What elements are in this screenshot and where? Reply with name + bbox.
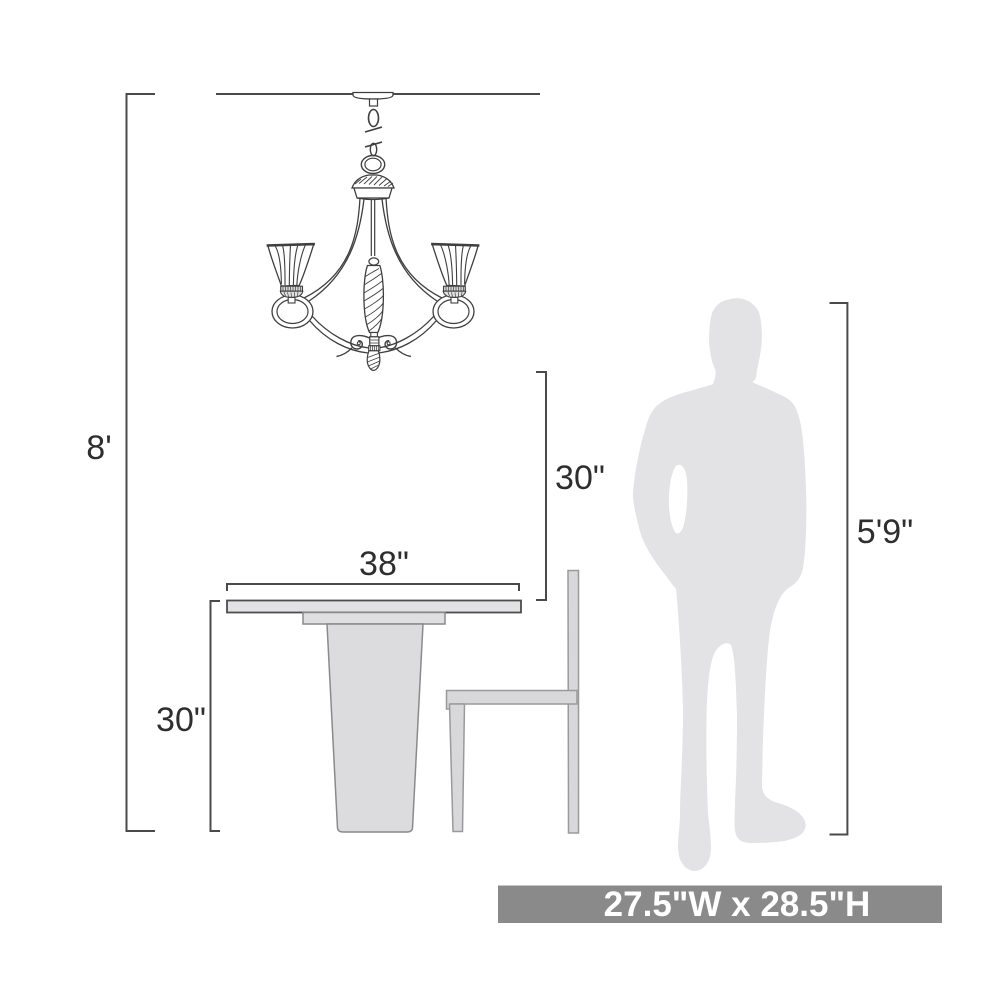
svg-text:27.5"W x 28.5"H: 27.5"W x 28.5"H [604, 885, 871, 924]
svg-text:38": 38" [359, 545, 409, 583]
svg-text:30": 30" [555, 459, 605, 497]
svg-text:30": 30" [156, 701, 206, 739]
svg-text:5'9": 5'9" [857, 513, 913, 551]
svg-text:8': 8' [86, 429, 111, 467]
